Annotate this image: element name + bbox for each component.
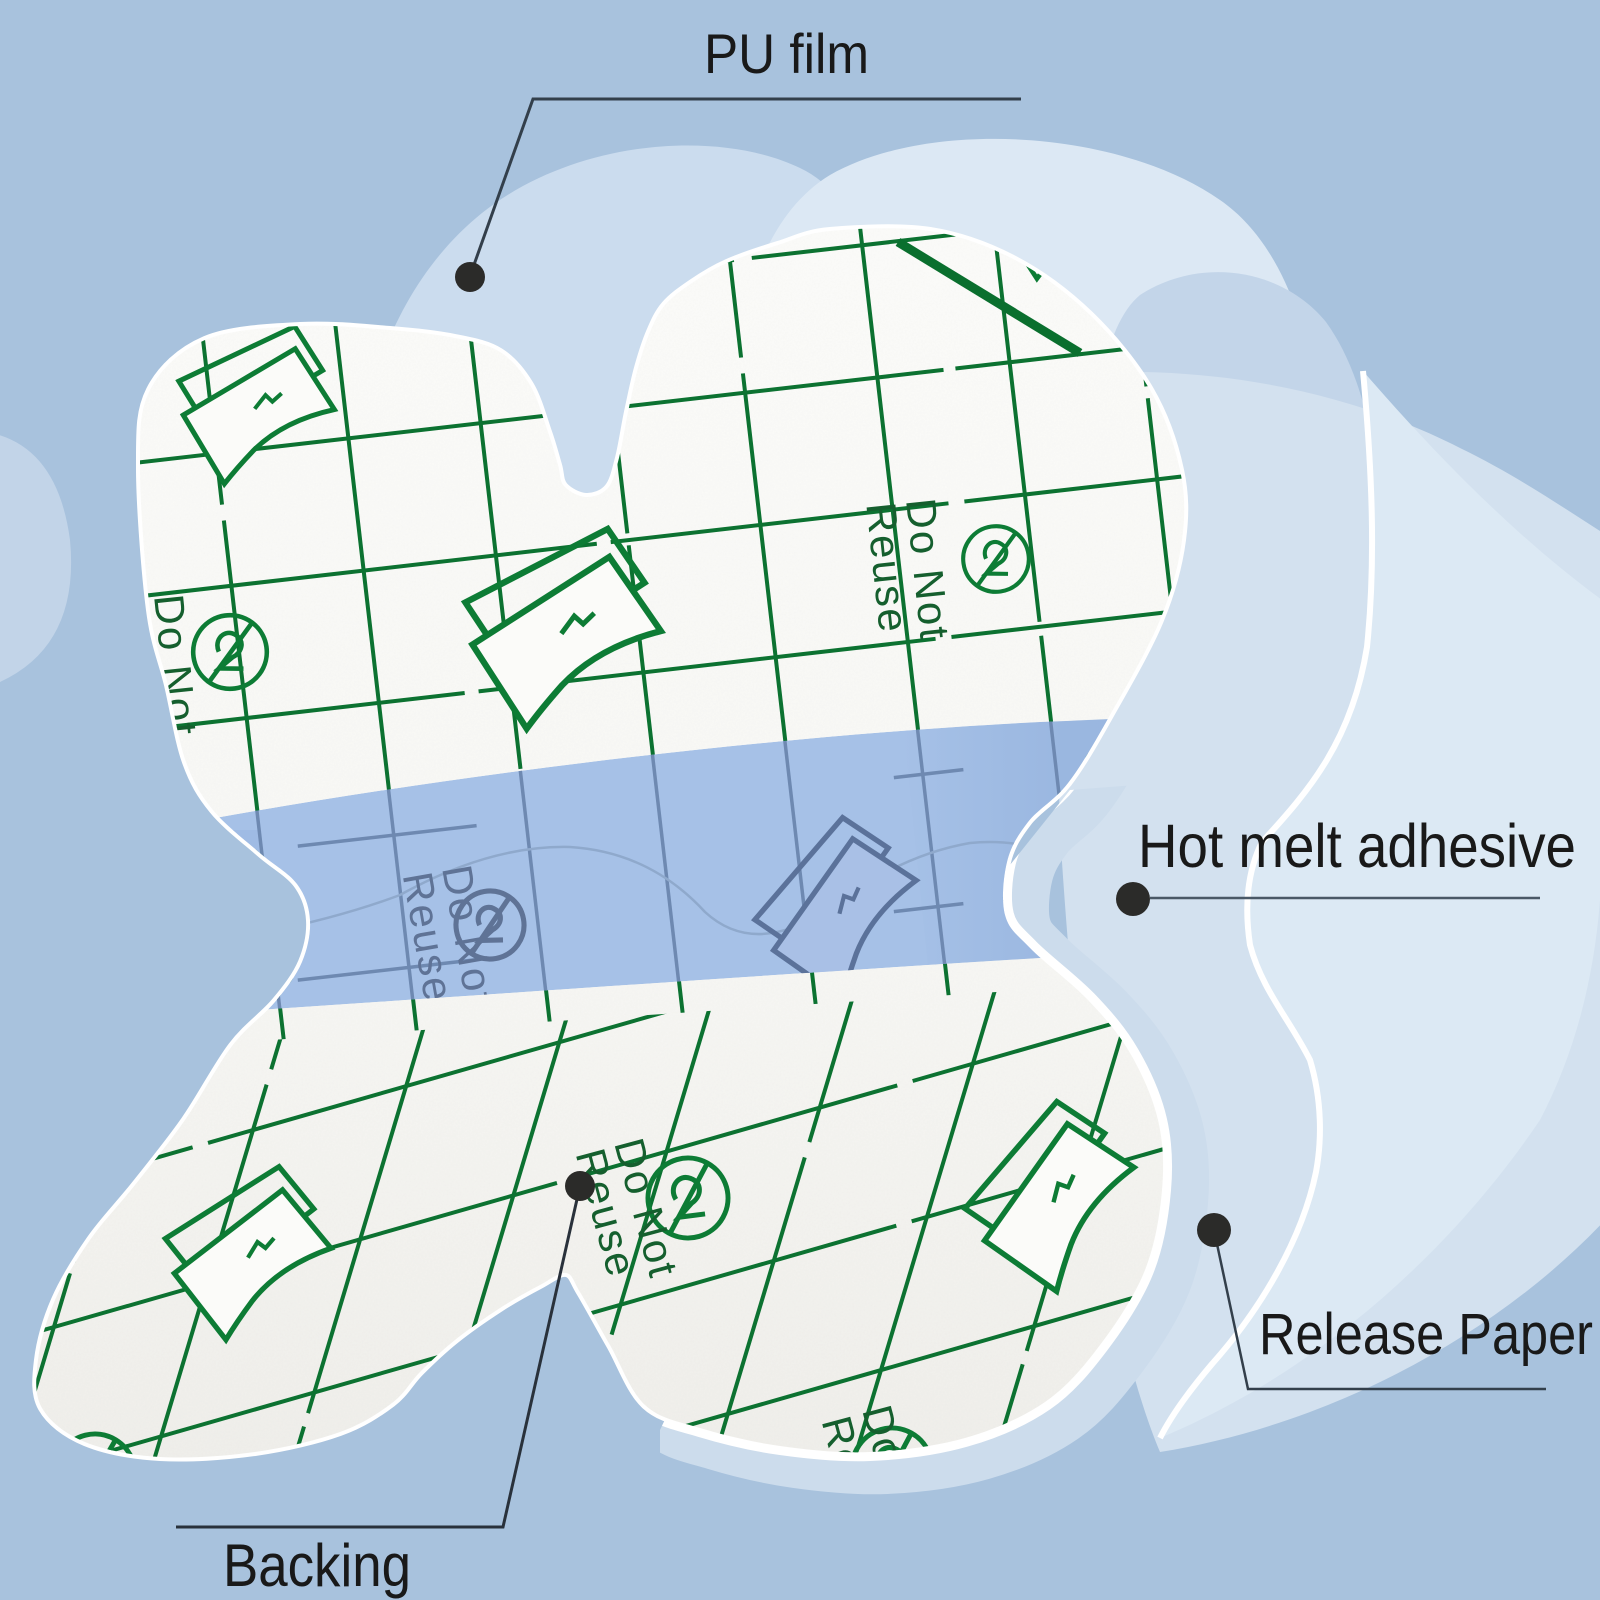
- svg-text:Release Paper: Release Paper: [1259, 1302, 1593, 1367]
- svg-text:Backing: Backing: [223, 1532, 411, 1599]
- svg-text:PU film: PU film: [704, 22, 869, 85]
- svg-text:Do NotReuse: Do NotReuse: [857, 496, 958, 647]
- svg-text:Hot melt adhesive: Hot melt adhesive: [1138, 812, 1576, 880]
